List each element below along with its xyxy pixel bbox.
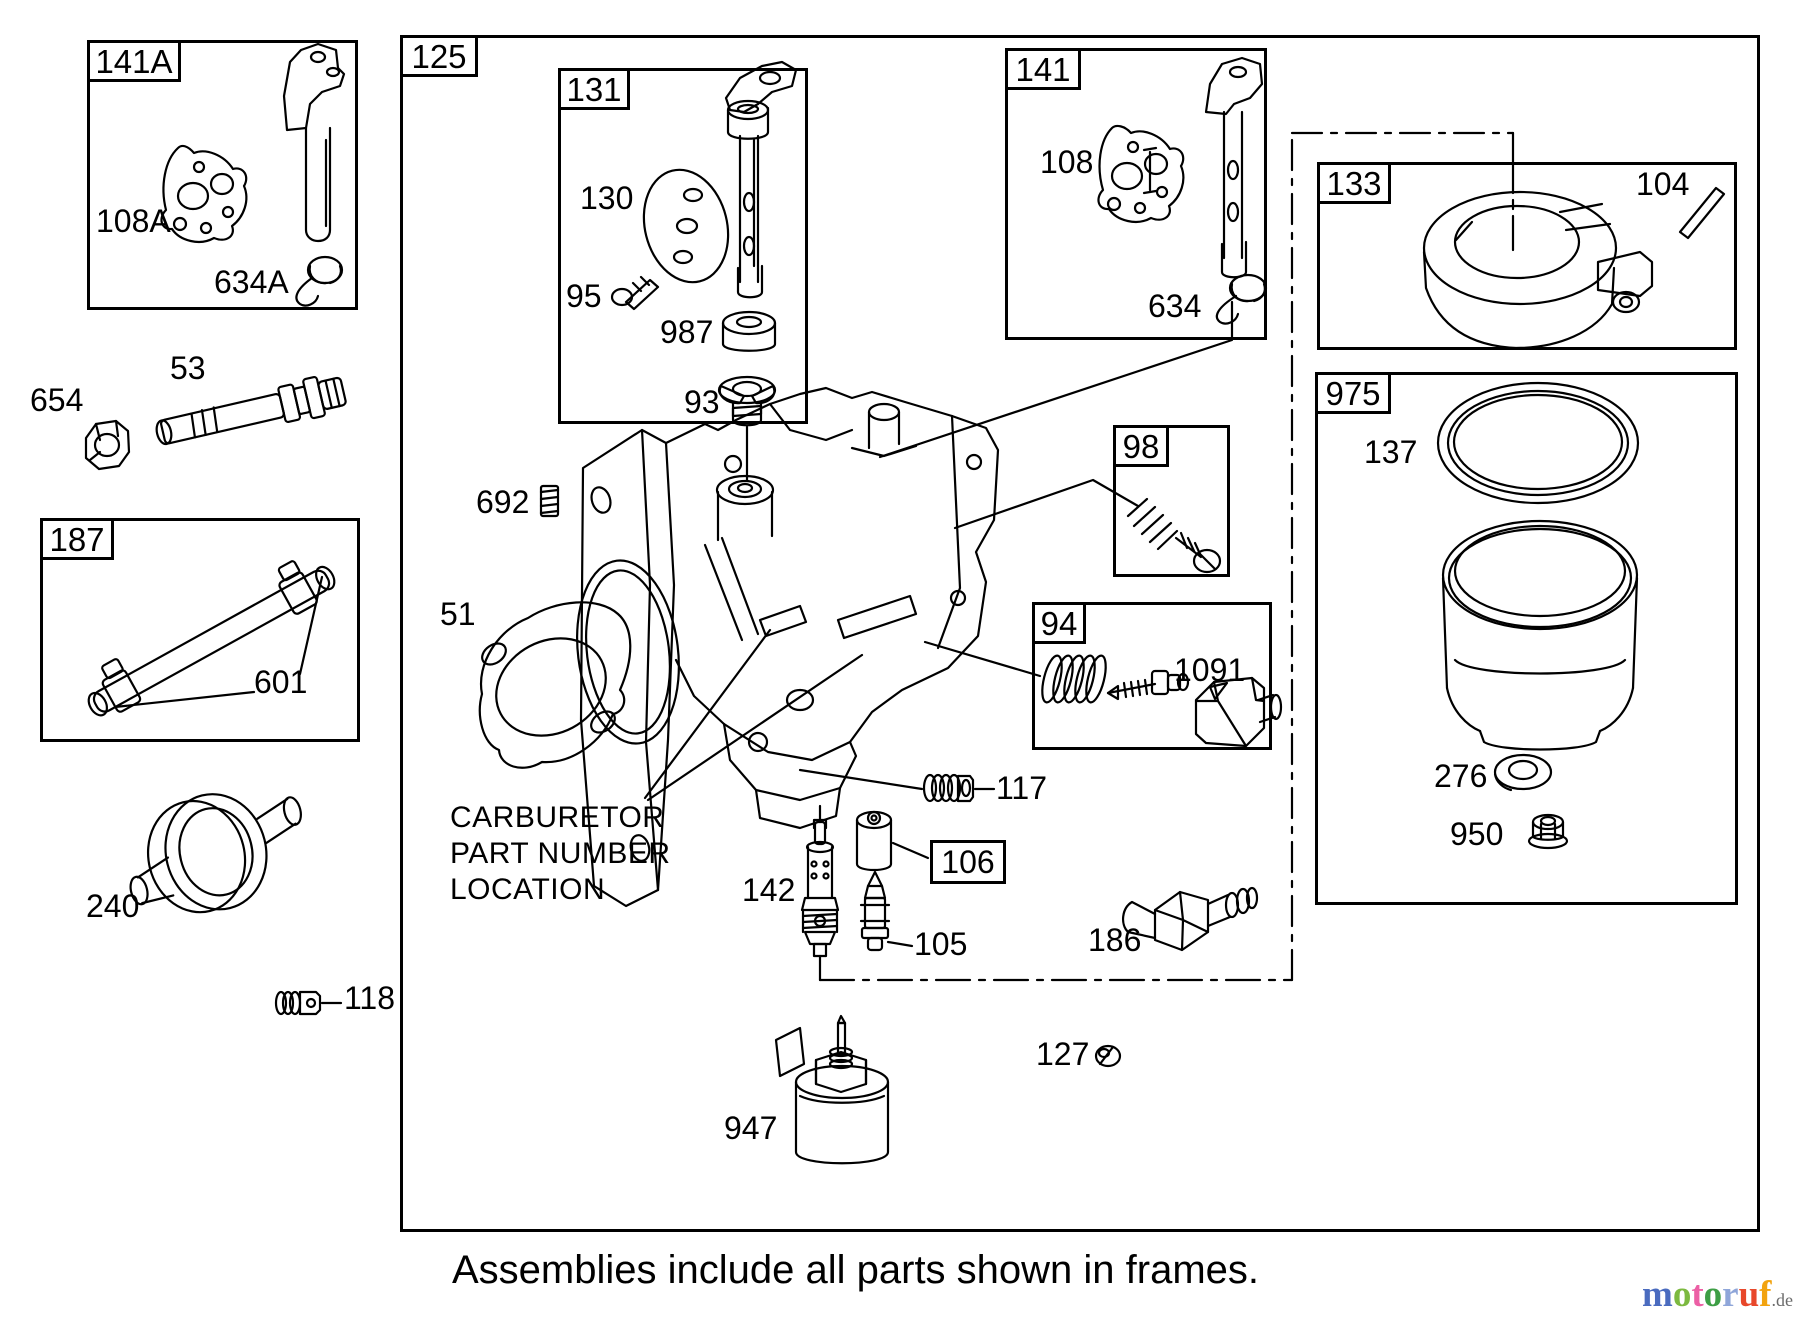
frame-141: 141 [1005, 48, 1267, 340]
diagram-caption: Assemblies include all parts shown in fr… [452, 1248, 1259, 1293]
logo-letter-2: t [1691, 1274, 1703, 1315]
motoruf-logo-suffix: .de [1772, 1290, 1794, 1310]
note-line-1: CARBURETOR [450, 800, 671, 836]
frame-label-125: 125 [400, 35, 478, 77]
part-label-240: 240 [86, 890, 139, 922]
frame-label-141: 141 [1005, 48, 1081, 90]
note-line-3: LOCATION [450, 872, 671, 908]
part-label-93: 93 [684, 386, 720, 418]
frame-98: 98 [1113, 425, 1230, 577]
part-label-118: 118 [344, 982, 395, 1014]
carburetor-parts-diagram: 141A1251311411339759894187 108A634A53654… [0, 0, 1800, 1319]
nut-654-drawing [86, 421, 129, 469]
motoruf-logo[interactable]: motoruf.de [1642, 1276, 1793, 1313]
frame-label-98: 98 [1113, 425, 1169, 467]
part-label-127: 127 [1036, 1038, 1089, 1070]
part-label-601: 601 [254, 666, 307, 698]
part-label-108: 108 [1040, 146, 1093, 178]
part-label-137: 137 [1364, 436, 1417, 468]
frame-label-133: 133 [1317, 162, 1391, 204]
part-label-104: 104 [1636, 168, 1689, 200]
part-label-947: 947 [724, 1112, 777, 1144]
part-label-108A: 108A [96, 205, 171, 237]
logo-letter-3: o [1704, 1274, 1723, 1315]
part-label-692: 692 [476, 486, 529, 518]
part-label-142: 142 [742, 874, 795, 906]
frame-label-975: 975 [1315, 372, 1391, 414]
logo-letter-0: m [1642, 1274, 1673, 1315]
part-label-950: 950 [1450, 818, 1503, 850]
frame-label-131: 131 [558, 68, 630, 110]
part-label-987: 987 [660, 316, 713, 348]
part-label-1091: 1091 [1174, 654, 1245, 686]
note-line-2: PART NUMBER [450, 836, 671, 872]
part-label-105: 105 [914, 928, 967, 960]
fuel-filter-240-drawing [113, 773, 320, 930]
part-number-location-note: CARBURETOR PART NUMBER LOCATION [450, 800, 671, 908]
logo-letter-4: r [1722, 1274, 1738, 1315]
part-label-186: 186 [1088, 924, 1141, 956]
part-label-130: 130 [580, 182, 633, 214]
part-label-634A: 634A [214, 266, 289, 298]
part-label-95: 95 [566, 280, 602, 312]
frame-label-94: 94 [1032, 602, 1086, 644]
logo-letter-6: f [1759, 1274, 1771, 1315]
logo-letter-5: u [1739, 1274, 1760, 1315]
frame-187: 187 [40, 518, 360, 742]
frame-label-187: 187 [40, 518, 114, 560]
plug-118-drawing [276, 992, 341, 1014]
motoruf-logo-letters: motoruf [1642, 1274, 1772, 1315]
part-label-634: 634 [1148, 290, 1201, 322]
part-label-654: 654 [30, 384, 83, 416]
part-label-276: 276 [1434, 760, 1487, 792]
frame-131: 131 [558, 68, 808, 424]
part-label-51: 51 [440, 598, 476, 630]
logo-letter-1: o [1673, 1274, 1692, 1315]
part-label-53: 53 [170, 352, 206, 384]
frame-label-141A: 141A [87, 40, 181, 82]
boxed-part-label-106: 106 [930, 840, 1006, 884]
part-label-117: 117 [996, 772, 1047, 804]
